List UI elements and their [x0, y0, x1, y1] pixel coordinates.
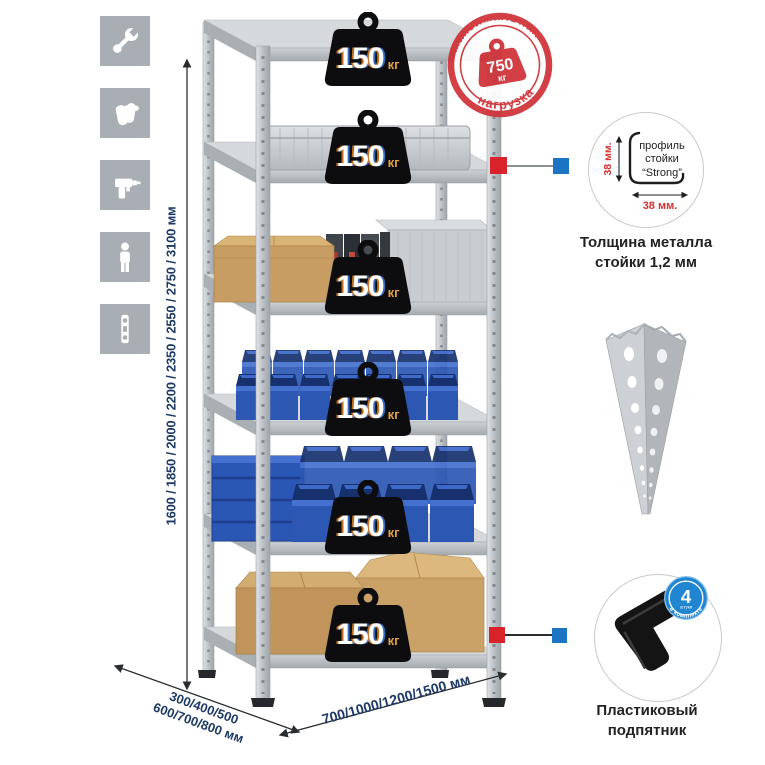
kit-quantity-badge: 4 штуки в комплекте [663, 575, 709, 621]
profile-dim-vertical: 38 мм. [602, 142, 614, 175]
kit-badge-sub: штуки [680, 605, 693, 610]
shelving-infographic: 1600 / 1850 / 2000 / 2200 / 2350 / 2550 … [0, 0, 765, 765]
weight-badge-6: 150кг [316, 588, 420, 668]
svg-text:профиль: профиль [639, 140, 685, 152]
weight-badge-4: 150кг [316, 362, 420, 442]
drill-icon [100, 160, 150, 210]
connector-profile [490, 157, 569, 174]
profile-label: профиль стойки “Strong” [639, 140, 685, 179]
connector-red-square [490, 157, 507, 174]
profile-callout-circle: 38 мм. 38 мм. профиль стойки “Strong” [588, 112, 704, 228]
connector-blue-square [553, 158, 569, 174]
svg-text:стойки: стойки [645, 153, 679, 165]
gloves-icon [100, 88, 150, 138]
weight-badge-2: 150кг [316, 110, 420, 190]
max-load-stamp: максимальная нагрузка 750 кг [445, 10, 555, 120]
person-icon [100, 232, 150, 282]
height-dimension-label: 1600 / 1850 / 2000 / 2200 / 2350 / 2550 … [164, 207, 179, 526]
weight-badge-5: 150кг [316, 480, 420, 560]
level-icon [100, 304, 150, 354]
connector-foot [489, 627, 567, 643]
angle-post-image [598, 312, 694, 524]
connector-blue-square [552, 628, 567, 643]
wrench-icon [100, 16, 150, 66]
plastic-foot-caption: Пластиковый подпятник [567, 701, 727, 740]
profile-dim-horizontal: 38 мм. [643, 200, 678, 212]
weight-badge-1: 150кг [316, 12, 420, 92]
svg-text:“Strong”: “Strong” [642, 167, 682, 179]
connector-red-square [489, 627, 505, 643]
metal-thickness-caption: Толщина металла стойки 1,2 мм [566, 233, 726, 272]
weight-badge-3: 150кг [316, 240, 420, 320]
